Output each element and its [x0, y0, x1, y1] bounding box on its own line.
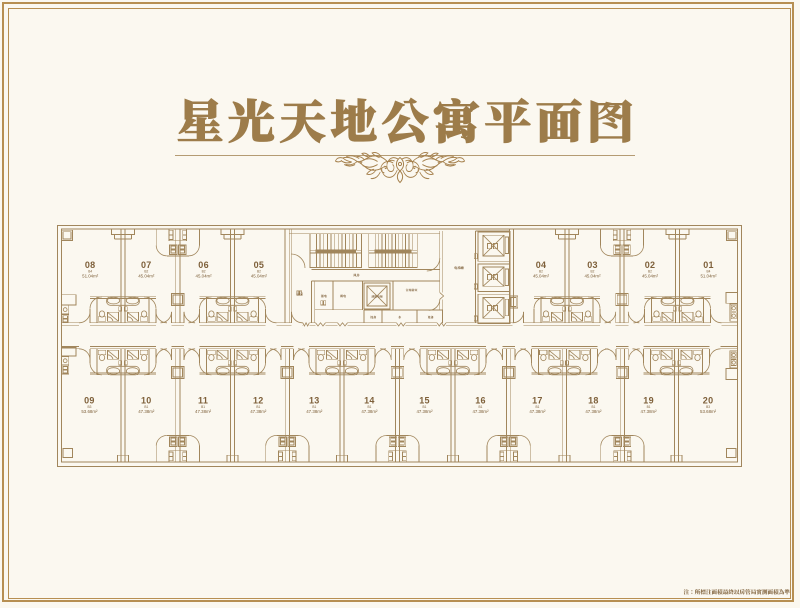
svg-text:45.04m²: 45.04m² [196, 273, 213, 278]
svg-text:45.04m²: 45.04m² [533, 273, 550, 278]
svg-text:17: 17 [532, 395, 543, 405]
svg-text:51.04m²: 51.04m² [700, 273, 717, 278]
svg-text:03: 03 [587, 260, 598, 270]
svg-text:11: 11 [198, 395, 208, 405]
svg-text:53.68m²: 53.68m² [700, 409, 717, 414]
svg-text:16: 16 [475, 395, 486, 405]
svg-text:05: 05 [254, 260, 265, 270]
svg-text:45.04m²: 45.04m² [642, 273, 659, 278]
svg-text:47.38m²: 47.38m² [195, 409, 212, 414]
svg-text:47.38m²: 47.38m² [416, 409, 433, 414]
svg-text:18: 18 [588, 395, 599, 405]
svg-text:47.38m²: 47.38m² [641, 409, 658, 414]
svg-text:47.38m²: 47.38m² [472, 409, 489, 414]
svg-text:02: 02 [645, 260, 656, 270]
svg-text:09: 09 [84, 395, 95, 405]
svg-text:47.38m²: 47.38m² [306, 409, 323, 414]
svg-text:15: 15 [419, 395, 430, 405]
svg-text:45.04m²: 45.04m² [251, 273, 268, 278]
svg-text:47.38m²: 47.38m² [138, 409, 155, 414]
svg-text:47.38m²: 47.38m² [250, 409, 267, 414]
svg-text:04: 04 [536, 260, 547, 270]
svg-text:13: 13 [309, 395, 320, 405]
svg-text:19: 19 [643, 395, 654, 405]
svg-text:07: 07 [141, 260, 152, 270]
svg-text:08: 08 [85, 260, 96, 270]
svg-text:01: 01 [703, 260, 714, 270]
svg-text:53.68m²: 53.68m² [81, 409, 98, 414]
svg-text:47.38m²: 47.38m² [585, 409, 602, 414]
svg-text:14: 14 [364, 395, 375, 405]
svg-text:51.04m²: 51.04m² [82, 273, 99, 278]
svg-text:12: 12 [253, 395, 264, 405]
svg-text:06: 06 [198, 260, 209, 270]
svg-text:45.04m²: 45.04m² [584, 273, 601, 278]
svg-text:47.38m²: 47.38m² [361, 409, 378, 414]
svg-text:45.04m²: 45.04m² [138, 273, 155, 278]
svg-text:47.38m²: 47.38m² [529, 409, 546, 414]
svg-text:10: 10 [141, 395, 152, 405]
svg-text:20: 20 [703, 395, 714, 405]
